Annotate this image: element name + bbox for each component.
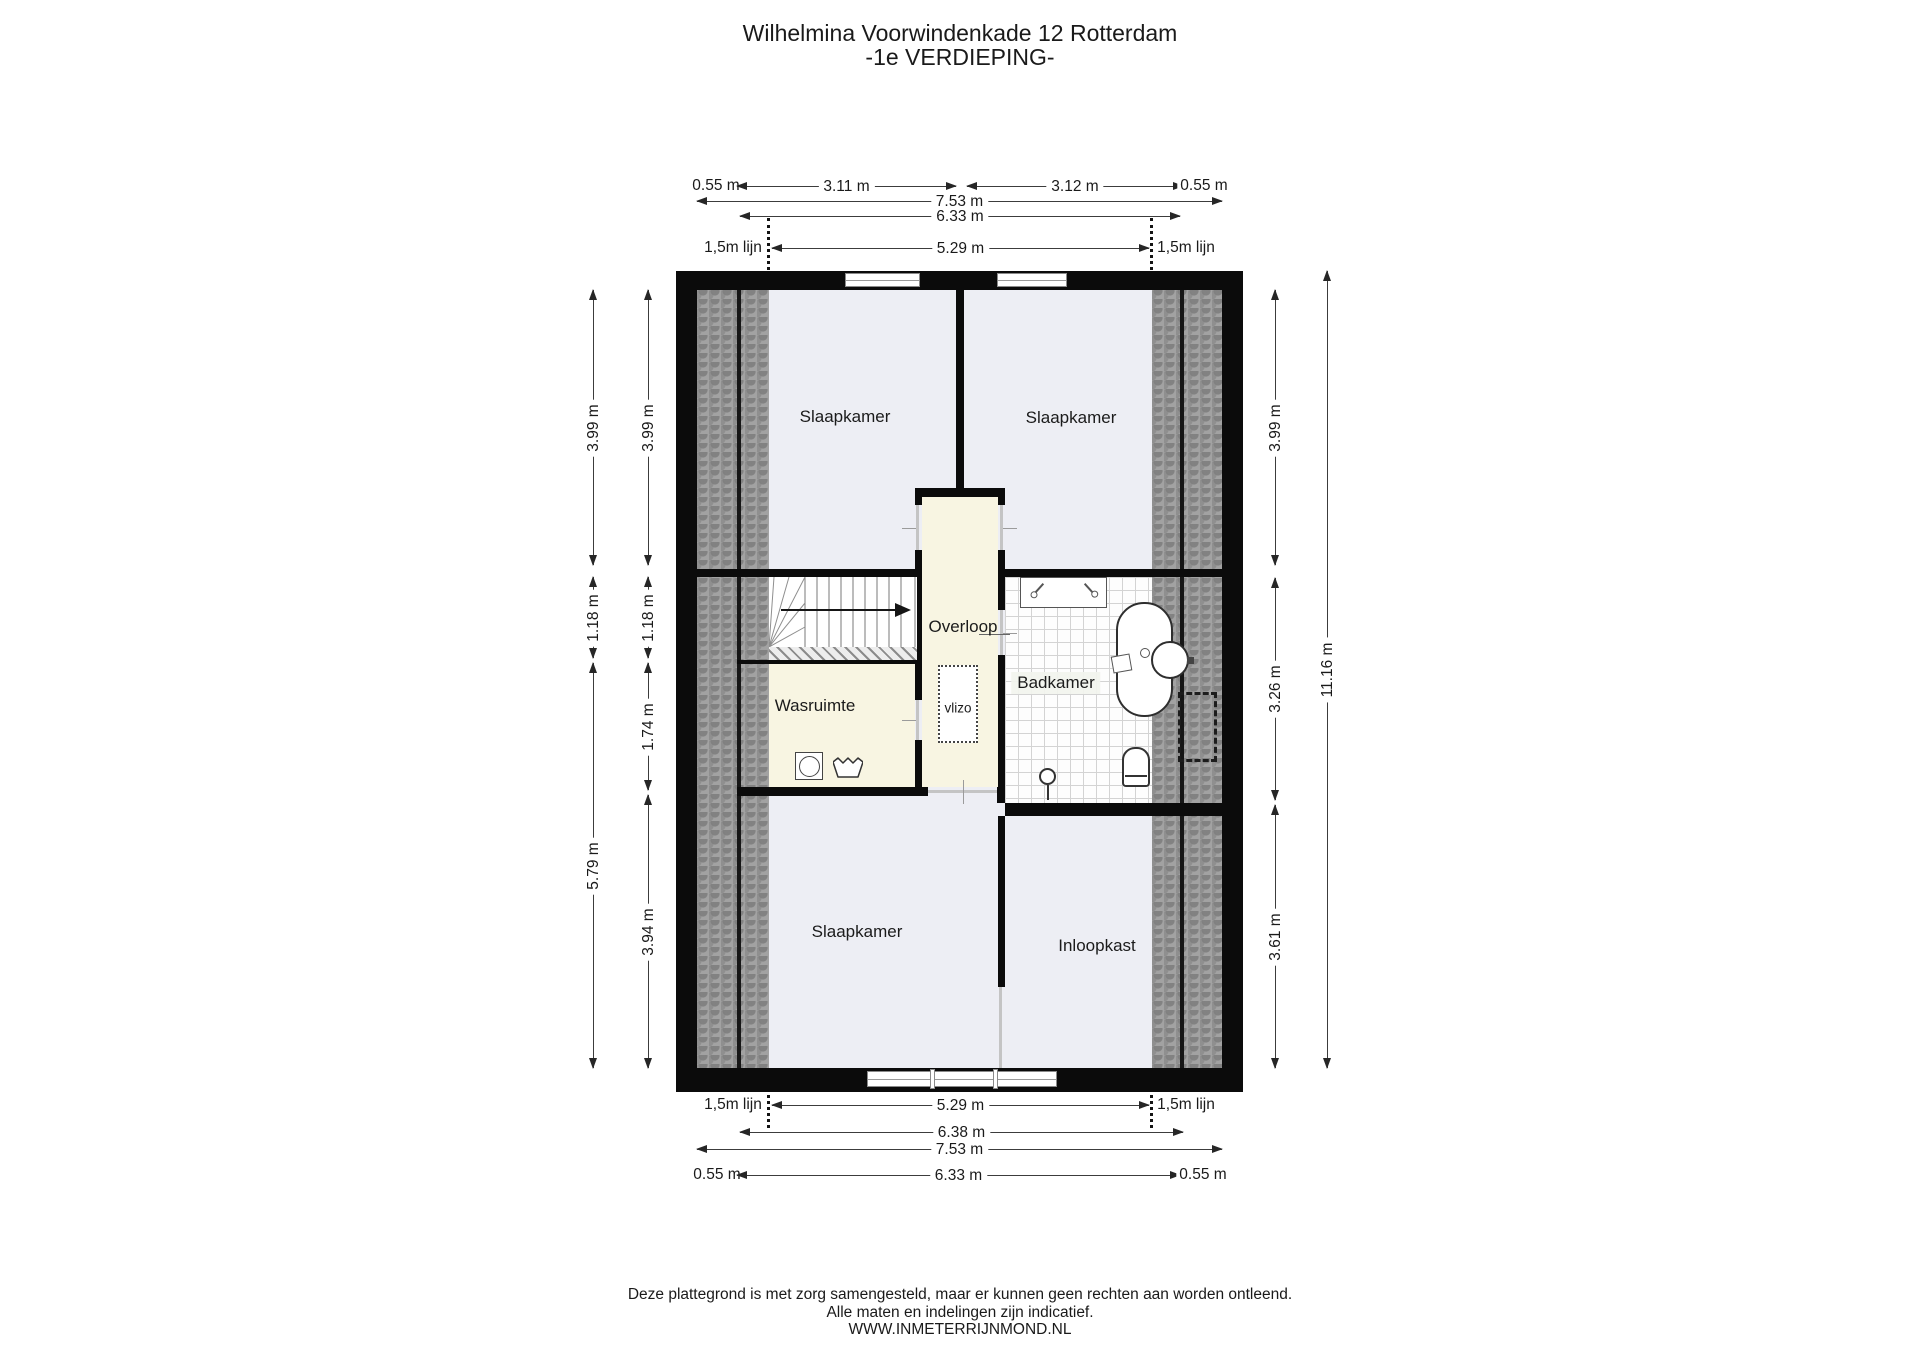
round-sink [1151,641,1189,679]
wall-landing-right [998,497,1005,505]
dim-line: 3.12 m [967,186,1183,187]
wall-landing-right [998,550,1005,610]
floorplan: Slaapkamer Slaapkamer Overloop Badkamer … [676,271,1243,1092]
wall-bathroom-left [998,655,1005,803]
dim-label: 1.74 m [640,698,658,755]
door-inloopkast [999,987,1002,1068]
window-divider [993,1069,998,1089]
dim-label: 1,5m lijn [701,239,765,257]
dim-label: 0.55 m [1176,1166,1229,1184]
door-slaapkamer-bottom [928,790,997,793]
knee-wall-right [1180,290,1184,1068]
dim-label: 5.79 m [585,837,603,894]
wall-bedroom-partition [956,290,964,488]
page-subtitle: -1e VERDIEPING- [0,44,1920,71]
dim-line: 6.33 m [740,216,1180,217]
room-label-slaapkamer-top-right: Slaapkamer [1026,408,1117,428]
dim-line: 3.11 m [737,186,956,187]
wall-landing-left [915,740,922,787]
room-label-slaapkamer-bottom: Slaapkamer [812,922,903,942]
room-label-inloopkast: Inloopkast [1058,936,1136,956]
dim-line: 6.33 m [737,1175,1180,1176]
dim-label: 5.29 m [932,240,989,258]
dim-line: 3.61 m [1275,805,1276,1068]
toilet [1122,747,1150,787]
room-label-wasruimte: Wasruimte [775,696,856,716]
dim-line: 7.53 m [697,1149,1222,1150]
dim-line: 5.29 m [772,248,1149,249]
disclaimer-line1: Deze plattegrond is met zorg samengestel… [0,1286,1920,1304]
dim-line: 3.99 m [593,290,594,565]
dim-line: 5.79 m [593,663,594,1068]
dim-line: 3.99 m [648,290,649,565]
dim-line: 1.18 m [593,577,594,658]
laundry-tub-icon [833,757,863,778]
room-label-badkamer: Badkamer [1011,672,1100,694]
sloped-roof-zone-left [697,290,769,1068]
dim-label: 3.99 m [585,399,603,456]
dim-label: 1,5m lijn [1154,239,1218,257]
door-wasruimte [916,700,919,740]
dim-label: 0.55 m [1177,177,1230,195]
wall-closet-left [998,816,1005,987]
dim-line: 3.94 m [648,795,649,1068]
wall-laundry-bottom [737,787,928,796]
dim-label: 7.53 m [931,1141,988,1159]
room-overloop [922,497,998,787]
dim-label: 3.94 m [640,903,658,960]
dim-label: 3.11 m [818,178,874,196]
room-label-overloop: Overloop [929,617,998,637]
disclaimer-line2: Alle maten en indelingen zijn indicatief… [0,1304,1920,1322]
dim-label: 6.38 m [933,1124,990,1142]
dim-line: 3.99 m [1275,290,1276,565]
dim-line: 5.29 m [772,1105,1149,1106]
floorplan-page: Wilhelmina Voorwindenkade 12 Rotterdam -… [0,0,1920,1358]
website-url: WWW.INMETERRIJNMOND.NL [0,1321,1920,1339]
dim-line: 11.16 m [1327,271,1328,1068]
door-badkamer [1000,610,1003,655]
window-bottom [867,1071,1057,1087]
dim-label: 3.12 m [1046,178,1103,196]
dashed-outline [1178,692,1217,762]
dim-label: 1,5m lijn [701,1096,765,1114]
window-top-right [997,273,1067,287]
shower-drain-icon [1039,768,1056,785]
dim-label: 1.18 m [640,589,658,646]
door-bedroom-left [916,505,919,550]
window-top-left [845,273,920,287]
wall-bathroom-top [1005,569,1243,577]
dim-line: 3.26 m [1275,578,1276,800]
outer-wall-left [676,271,697,1092]
stairs [769,577,917,647]
room-label-slaapkamer-top-left: Slaapkamer [800,407,891,427]
wall-landing-bottom-corner [997,787,1005,803]
wall-landing-top [915,488,1005,497]
door-bedroom-right [1000,505,1003,550]
washing-machine-icon [795,752,823,780]
bath-stool [1111,653,1133,673]
dim-line: 1.74 m [648,663,649,790]
knee-wall-left [737,290,741,1068]
dim-label: 3.26 m [1267,660,1285,717]
dim-label: 3.99 m [640,399,658,456]
room-label-vlizo: vlizo [944,701,971,716]
page-title: Wilhelmina Voorwindenkade 12 Rotterdam [0,20,1920,47]
dim-line: 7.53 m [697,201,1222,202]
wall-above-stairs [676,569,922,577]
wall-bathroom-bottom [1005,803,1243,816]
dim-line: 1.18 m [648,577,649,658]
dim-label: 6.33 m [930,1167,987,1185]
dim-label: 3.61 m [1267,908,1285,965]
stairs-void-hatch [769,647,917,660]
window-divider [930,1069,935,1089]
wall-landing-left [915,497,922,505]
dim-line: 6.38 m [740,1132,1183,1133]
dim-label: 0.55 m [689,177,742,195]
dim-label: 5.29 m [932,1097,989,1115]
dim-label: 3.99 m [1267,399,1285,456]
dim-label: 6.33 m [931,208,988,226]
outer-wall-right [1222,271,1243,1092]
dim-label: 1.18 m [585,589,603,646]
dim-label: 1,5m lijn [1154,1096,1218,1114]
dim-label: 11.16 m [1319,637,1337,702]
shower-stem [1047,785,1049,800]
outer-wall-top [676,271,1243,290]
